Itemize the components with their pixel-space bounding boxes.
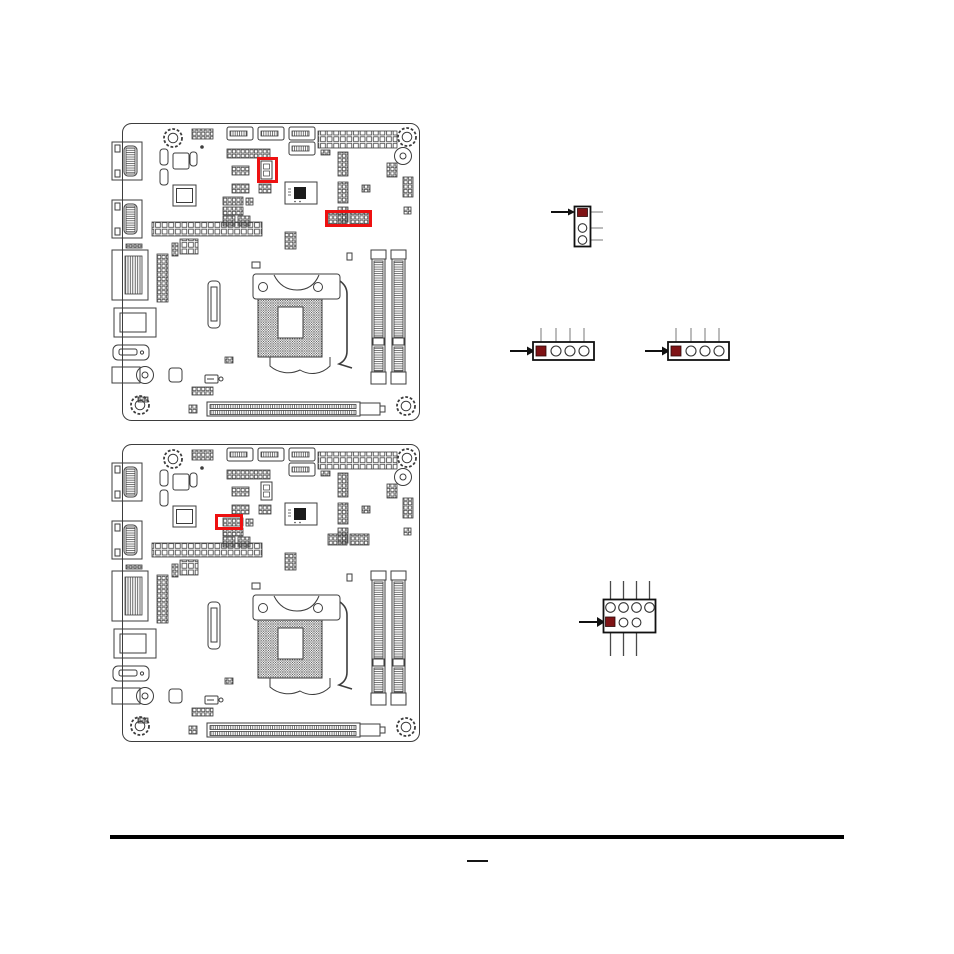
pinout-3pin-header — [545, 200, 607, 255]
pin1-square — [671, 346, 681, 356]
pin1-square — [578, 209, 588, 217]
pinout-4pin-header-right — [643, 321, 745, 365]
highlight-box-connector — [257, 157, 278, 183]
page-number-dash — [467, 860, 488, 862]
pinout-4pin-header-left — [508, 321, 610, 365]
pin1-square — [536, 346, 546, 356]
motherboard-diagram-bottom — [110, 443, 422, 743]
highlight-box-jumper-lower — [215, 514, 243, 530]
footer-rule — [110, 835, 844, 839]
pin1-square — [606, 617, 616, 627]
highlight-box-jumper-pair — [325, 210, 372, 227]
manual-page: { "page": { "background": "#ffffff", "ki… — [0, 0, 954, 954]
pinout-2x4-header — [575, 571, 671, 663]
